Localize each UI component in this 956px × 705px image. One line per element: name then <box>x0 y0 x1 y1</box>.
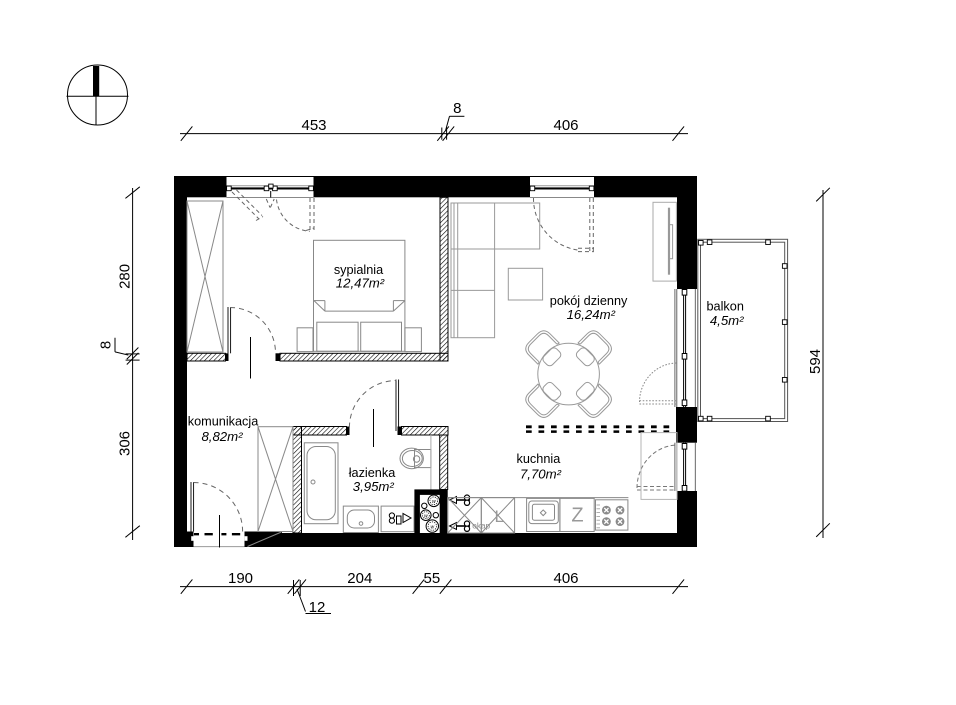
svg-text:12,47m²: 12,47m² <box>336 276 385 291</box>
svg-text:453: 453 <box>301 117 326 134</box>
svg-text:łazienka: łazienka <box>349 466 396 480</box>
svg-text:w: w <box>424 513 428 519</box>
svg-text:190: 190 <box>228 570 253 587</box>
svg-text:55: 55 <box>424 570 441 587</box>
svg-text:7,70m²: 7,70m² <box>520 466 562 481</box>
svg-text:3,95m²: 3,95m² <box>353 479 395 494</box>
svg-text:w: w <box>430 524 434 530</box>
svg-text:balkon: balkon <box>707 300 744 314</box>
svg-text:16,24m²: 16,24m² <box>567 307 616 322</box>
svg-text:w: w <box>432 499 436 505</box>
svg-text:Z: Z <box>571 504 583 526</box>
svg-text:406: 406 <box>553 570 578 587</box>
svg-text:8: 8 <box>98 341 115 349</box>
svg-text:komunikacja: komunikacja <box>188 415 259 429</box>
svg-text:204: 204 <box>347 570 372 587</box>
svg-text:12: 12 <box>309 599 326 616</box>
svg-text:594: 594 <box>807 349 824 374</box>
svg-text:280: 280 <box>117 264 134 289</box>
svg-text:L: L <box>495 507 504 526</box>
svg-text:kuchnia: kuchnia <box>517 452 562 466</box>
svg-text:pokój dzienny: pokój dzienny <box>550 294 628 308</box>
svg-text:4,5m²: 4,5m² <box>710 313 744 328</box>
svg-text:8,82m²: 8,82m² <box>201 429 243 444</box>
svg-text:8: 8 <box>453 100 461 117</box>
svg-text:406: 406 <box>553 117 578 134</box>
svg-text:306: 306 <box>117 431 134 456</box>
